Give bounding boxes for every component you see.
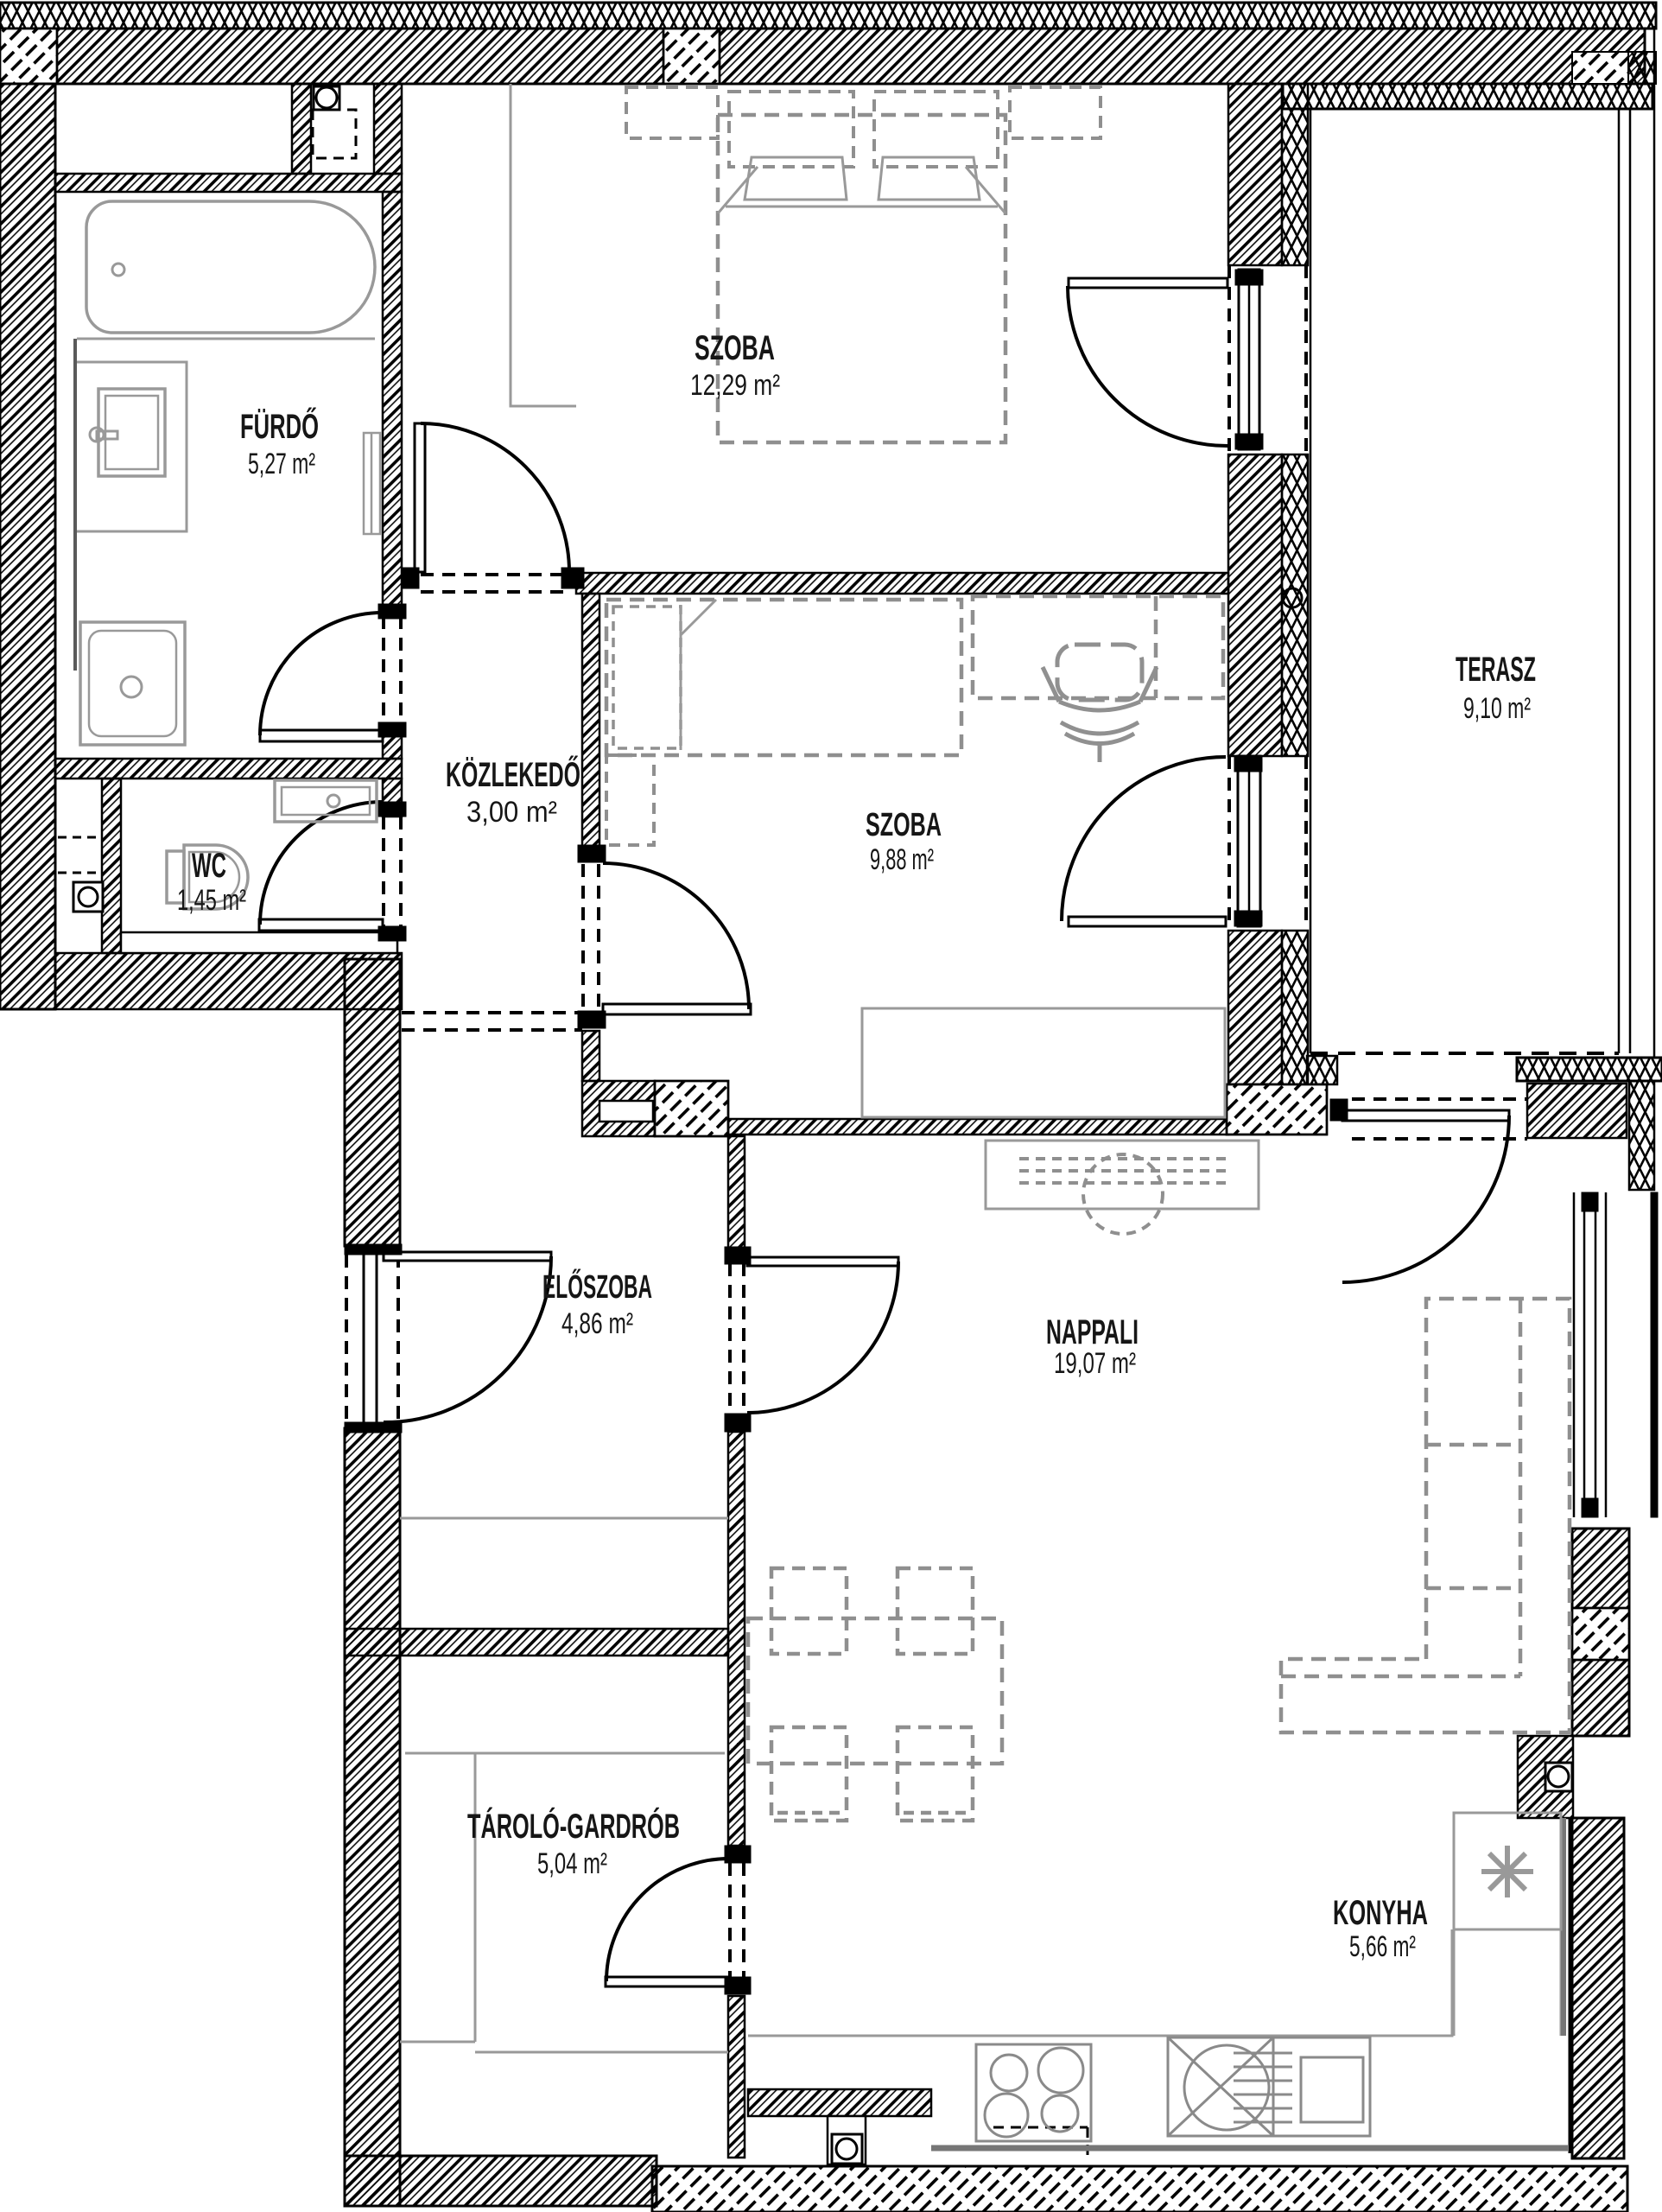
svg-text:WC: WC — [192, 847, 226, 885]
svg-text:FÜRDŐ: FÜRDŐ — [240, 406, 319, 446]
svg-text:KONYHA: KONYHA — [1333, 1894, 1428, 1932]
svg-text:SZOBA: SZOBA — [866, 807, 942, 843]
svg-text:NAPPALI: NAPPALI — [1046, 1313, 1139, 1351]
svg-text:5,27 m²: 5,27 m² — [248, 448, 315, 480]
svg-text:ELŐSZOBA: ELŐSZOBA — [542, 1268, 652, 1306]
svg-text:1,45 m²: 1,45 m² — [177, 884, 246, 917]
svg-text:4,86 m²: 4,86 m² — [561, 1307, 633, 1340]
svg-text:12,29 m²: 12,29 m² — [690, 369, 780, 402]
svg-text:TERASZ: TERASZ — [1456, 651, 1536, 689]
svg-text:3,00 m²: 3,00 m² — [466, 796, 557, 829]
svg-text:19,07 m²: 19,07 m² — [1054, 1347, 1136, 1380]
svg-text:TÁROLÓ-GARDRÓB: TÁROLÓ-GARDRÓB — [467, 1806, 680, 1846]
svg-text:9,10 m²: 9,10 m² — [1463, 692, 1531, 725]
svg-text:9,88 m²: 9,88 m² — [870, 843, 934, 876]
svg-text:SZOBA: SZOBA — [695, 329, 775, 367]
svg-text:5,66 m²: 5,66 m² — [1349, 1930, 1416, 1963]
svg-text:KÖZLEKEDŐ: KÖZLEKEDŐ — [446, 754, 580, 794]
svg-text:5,04 m²: 5,04 m² — [537, 1847, 607, 1880]
